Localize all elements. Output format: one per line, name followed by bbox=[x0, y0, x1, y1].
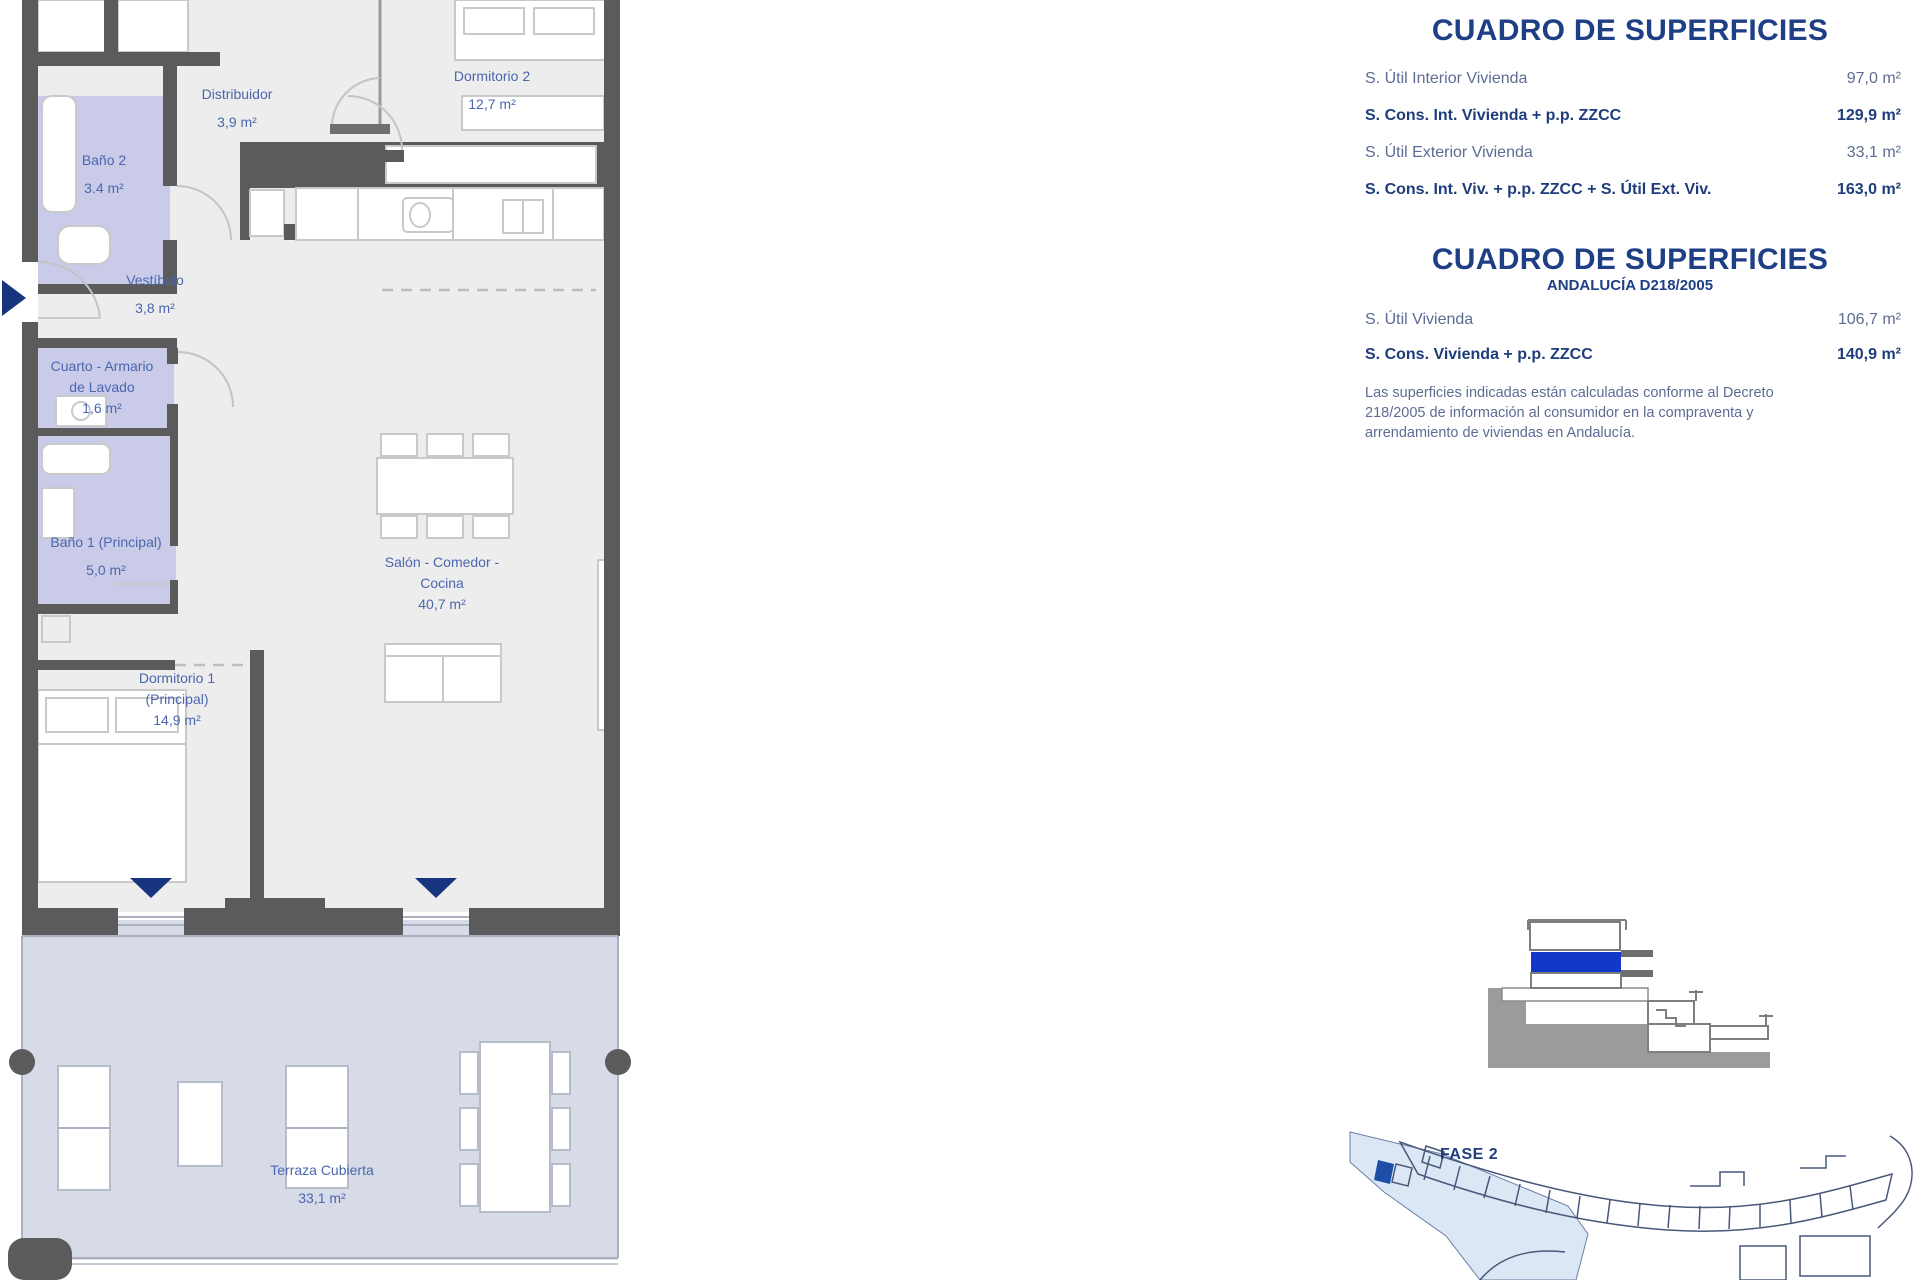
kitchen-column bbox=[240, 188, 250, 240]
table-rows: S. Útil Interior Vivienda 97,0 m² S. Con… bbox=[1357, 70, 1903, 218]
kitchen-counter bbox=[296, 188, 604, 240]
sofa bbox=[385, 644, 501, 702]
table-row: S. Cons. Vivienda + p.p. ZZCC 140,9 m² bbox=[1357, 346, 1903, 381]
table-row: S. Útil Exterior Vivienda 33,1 m² bbox=[1357, 144, 1903, 181]
corner-column bbox=[8, 1238, 72, 1280]
room-label-terraza: Terraza Cubierta33,1 m² bbox=[247, 1156, 397, 1212]
kitchen-column2 bbox=[284, 224, 296, 240]
bed-dormitorio2 bbox=[455, 0, 605, 60]
table-rows: S. Útil Vivienda 106,7 m² S. Cons. Vivie… bbox=[1357, 311, 1903, 381]
room-label-bano1: Baño 1 (Principal)5,0 m² bbox=[31, 528, 181, 584]
dining-table bbox=[377, 434, 513, 538]
shower-icon bbox=[42, 444, 110, 474]
legal-note: Las superficies indicadas están calculad… bbox=[1365, 383, 1845, 443]
table-title: CUADRO DE SUPERFICIES bbox=[1357, 14, 1903, 48]
ground-slab bbox=[1502, 988, 1648, 1001]
room-label-dormitorio1: Dormitorio 1(Principal)14,9 m² bbox=[102, 668, 252, 731]
column-icon bbox=[605, 1049, 631, 1075]
table-row: S. Cons. Int. Viv. + p.p. ZZCC + S. Útil… bbox=[1357, 181, 1903, 218]
entrance-arrow-icon bbox=[2, 280, 26, 316]
page: Distribuidor3,9 m² Dormitorio 212,7 m² B… bbox=[0, 0, 1920, 1280]
room-label-distribuidor: Distribuidor3,9 m² bbox=[162, 80, 312, 136]
surfaces-table-primary: CUADRO DE SUPERFICIES S. Útil Interior V… bbox=[1357, 14, 1903, 218]
outdoor-table-icon bbox=[480, 1042, 550, 1212]
section-diagram bbox=[1478, 906, 1798, 1076]
floor-plan: Distribuidor3,9 m² Dormitorio 212,7 m² B… bbox=[0, 0, 640, 1280]
room-label-salon: Salón - Comedor -Cocina40,7 m² bbox=[367, 552, 517, 615]
table-row: S. Cons. Int. Vivienda + p.p. ZZCC 129,9… bbox=[1357, 107, 1903, 144]
room-label-bano2: Baño 23.4 m² bbox=[29, 146, 179, 202]
kitchen-counter-top bbox=[386, 146, 596, 183]
kitchen-fridge bbox=[250, 190, 284, 236]
highlighted-floor bbox=[1531, 952, 1621, 973]
site-plan bbox=[1330, 1116, 1920, 1280]
room-label-vestibulo: Vestíbulo3,8 m² bbox=[80, 266, 230, 322]
table-subtitle: ANDALUCÍA D218/2005 bbox=[1357, 277, 1903, 295]
door-leaf bbox=[330, 124, 390, 134]
column-icon bbox=[9, 1049, 35, 1075]
toilet-icon bbox=[58, 226, 110, 264]
room-label-dormitorio2: Dormitorio 212,7 m² bbox=[417, 62, 567, 118]
side-table-icon bbox=[178, 1082, 222, 1166]
table-row: S. Útil Interior Vivienda 97,0 m² bbox=[1357, 70, 1903, 107]
phase-label: FASE 2 bbox=[1440, 1146, 1498, 1164]
room-label-lavado: Cuarto - Armariode Lavado1,6 m² bbox=[27, 356, 177, 419]
surfaces-table-andalucia: CUADRO DE SUPERFICIES ANDALUCÍA D218/200… bbox=[1357, 243, 1903, 443]
table-title: CUADRO DE SUPERFICIES bbox=[1357, 243, 1903, 277]
table-row: S. Útil Vivienda 106,7 m² bbox=[1357, 311, 1903, 346]
